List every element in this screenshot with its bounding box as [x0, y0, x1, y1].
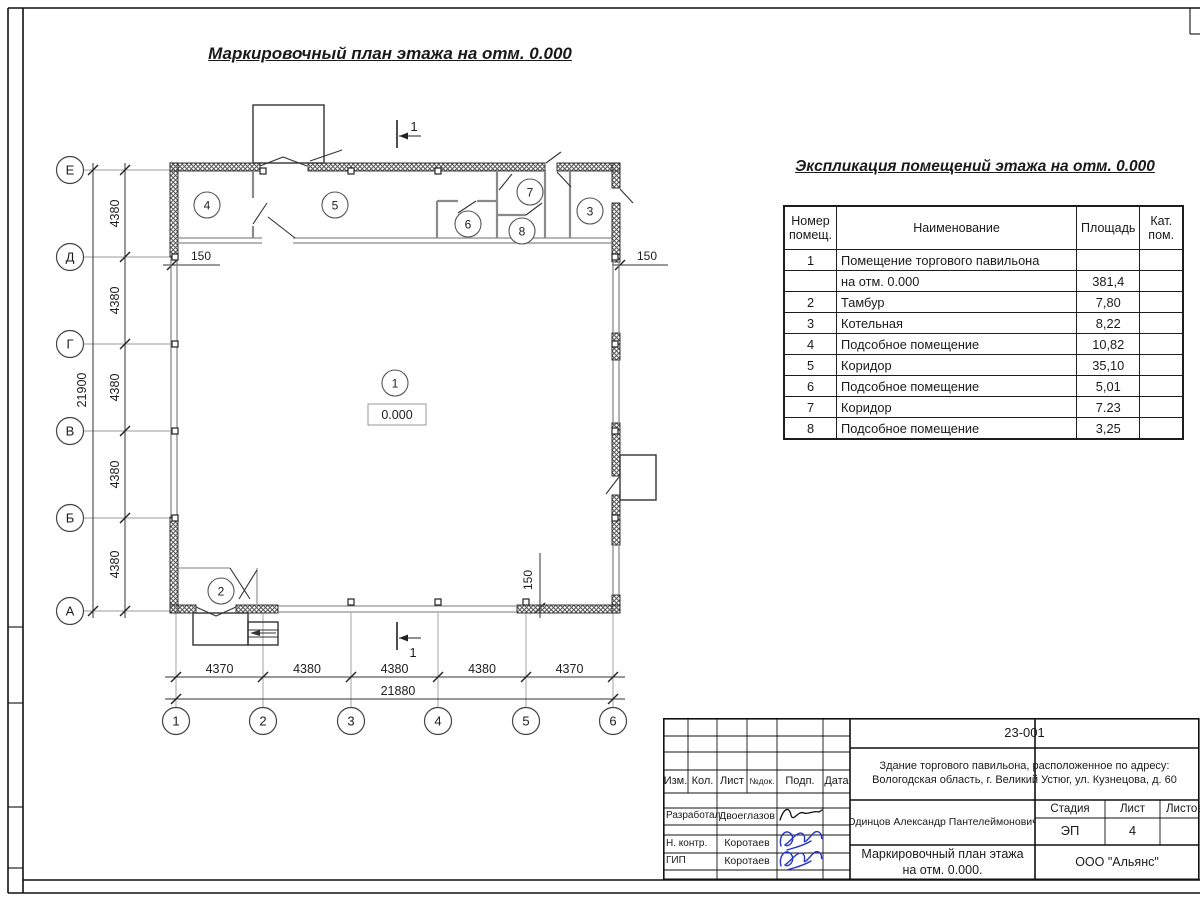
svg-text:6: 6 — [465, 218, 472, 232]
entrance-porch — [193, 613, 248, 645]
svg-text:4380: 4380 — [108, 200, 122, 228]
svg-text:4380: 4380 — [468, 662, 496, 676]
tb-name-developer: Двоеглазов — [717, 808, 777, 825]
stage-value: ЭП — [1035, 818, 1105, 845]
tb-name-ncontrol: Коротаев — [717, 835, 777, 853]
col-axis-labels: 1 2 3 4 5 6 — [172, 714, 616, 729]
entrance-arrowhead — [250, 630, 260, 636]
explication-title: Экспликация помещений этажа на отм. 0.00… — [775, 158, 1175, 176]
left-total-dim: 21900 — [75, 373, 89, 408]
svg-text:0.000: 0.000 — [381, 408, 412, 422]
svg-text:4380: 4380 — [108, 287, 122, 315]
tb-name-gip: Коротаев — [717, 853, 777, 870]
svg-text:4380: 4380 — [381, 662, 409, 676]
svg-text:150: 150 — [521, 570, 535, 590]
svg-text:4380: 4380 — [293, 662, 321, 676]
explication-header-row: Номерпомещ. Наименование Площадь Кат.пом… — [784, 206, 1183, 250]
svg-text:В: В — [66, 424, 75, 439]
elevation-label: 0.000 — [368, 404, 426, 425]
svg-text:2: 2 — [259, 714, 266, 729]
svg-text:4370: 4370 — [206, 662, 234, 676]
stage-label: Стадия — [1035, 800, 1105, 818]
dimension-ticks — [88, 165, 625, 704]
svg-text:4380: 4380 — [108, 461, 122, 489]
author-name: Одинцов Александр Пантелеймонович — [850, 800, 1035, 845]
svg-text:Е: Е — [66, 163, 75, 178]
table-row: 7Коридор7.23 — [784, 397, 1183, 418]
svg-text:4380: 4380 — [108, 374, 122, 402]
signature-ncontrol — [780, 832, 823, 850]
svg-text:Д: Д — [66, 250, 75, 265]
svg-text:8: 8 — [519, 225, 526, 239]
table-row: 1Помещение торгового павильона — [784, 250, 1183, 271]
axis-extension-lines — [84, 170, 613, 708]
exterior-walls-glazed — [171, 257, 619, 612]
svg-text:3: 3 — [587, 205, 594, 219]
col-header-cat: Кат.пом. — [1140, 206, 1183, 250]
drawing-title-line-1: Маркировочный план этажа — [861, 847, 1023, 863]
tb-header-izm: Изм. — [663, 770, 688, 793]
address-line-2: Вологодская область, г. Великий Устюг, у… — [872, 774, 1177, 788]
col-header-area: Площадь — [1077, 206, 1140, 250]
table-row: на отм. 0.000381,4 — [784, 271, 1183, 292]
svg-text:Б: Б — [66, 511, 75, 526]
svg-text:150: 150 — [191, 249, 211, 263]
tb-header-data: Дата — [823, 770, 850, 793]
table-row: 6Подсобное помещение5,01 — [784, 376, 1183, 397]
svg-text:5: 5 — [332, 199, 339, 213]
svg-text:5: 5 — [522, 714, 529, 729]
bottom-dimension-labels: 4370 4380 4380 4380 4370 21880 — [206, 662, 584, 698]
signature-gip — [780, 852, 823, 870]
title-block: Изм. Кол. Лист №док. Подп. Дата Разработ… — [663, 718, 1200, 880]
tb-role-developer: Разработал — [663, 808, 720, 825]
svg-text:Г: Г — [66, 337, 73, 352]
sheets-label: Листов — [1160, 800, 1200, 818]
company-name: ООО "Альянс" — [1035, 845, 1199, 880]
svg-text:6: 6 — [609, 714, 616, 729]
section-label-top: 1 — [410, 119, 417, 134]
svg-text:2: 2 — [218, 585, 225, 599]
col-header-name: Наименование — [837, 206, 1077, 250]
drawing-sheet: 1 1 Е Д Г В Б А 1 2 — [0, 0, 1200, 900]
col-axis-bubbles — [163, 708, 627, 735]
sheet-number: 4 — [1105, 818, 1160, 845]
table-row: 8Подсобное помещение3,25 — [784, 418, 1183, 440]
bottom-total-dim: 21880 — [381, 684, 416, 698]
table-row: 5Коридор35,10 — [784, 355, 1183, 376]
tb-header-podp: Подп. — [777, 770, 823, 793]
signature-developer — [780, 809, 822, 820]
tb-header-list: Лист — [717, 770, 747, 793]
svg-text:150: 150 — [637, 249, 657, 263]
svg-text:1: 1 — [392, 377, 399, 391]
svg-text:4370: 4370 — [556, 662, 584, 676]
svg-text:4380: 4380 — [108, 551, 122, 579]
address-line-1: Здание торгового павильона, расположенно… — [879, 760, 1169, 774]
porches — [193, 105, 656, 645]
table-row: 2Тамбур7,80 — [784, 292, 1183, 313]
tb-header-ndoc: №док. — [747, 770, 777, 793]
section-label-bottom: 1 — [409, 645, 416, 660]
svg-text:4: 4 — [434, 714, 441, 729]
plan-title: Маркировочный план этажа на отм. 0.000 — [180, 44, 600, 64]
svg-text:А: А — [66, 604, 75, 619]
col-header-num: Номерпомещ. — [784, 206, 837, 250]
drawing-title-line-2: на отм. 0.000. — [902, 863, 982, 879]
section-mark-bottom: 1 — [397, 622, 421, 660]
door-leaves — [196, 150, 633, 616]
tb-header-kol: Кол. — [688, 770, 717, 793]
table-row: 4Подсобное помещение10,82 — [784, 334, 1183, 355]
side-porch — [620, 455, 656, 500]
row-axis-labels: Е Д Г В Б А — [66, 163, 75, 619]
svg-text:4: 4 — [204, 199, 211, 213]
sheet-label: Лист — [1105, 800, 1160, 818]
svg-text:1: 1 — [172, 714, 179, 729]
tb-role-ncontrol: Н. контр. — [663, 835, 720, 853]
explication-table: Номерпомещ. Наименование Площадь Кат.пом… — [783, 205, 1184, 440]
svg-text:7: 7 — [527, 186, 534, 200]
section-mark-top: 1 — [397, 119, 421, 148]
doc-number: 23-001 — [850, 718, 1199, 748]
table-row: 3Котельная8,22 — [784, 313, 1183, 334]
svg-text:3: 3 — [347, 714, 354, 729]
tb-role-gip: ГИП — [663, 853, 720, 870]
top-vestibule — [253, 105, 324, 163]
